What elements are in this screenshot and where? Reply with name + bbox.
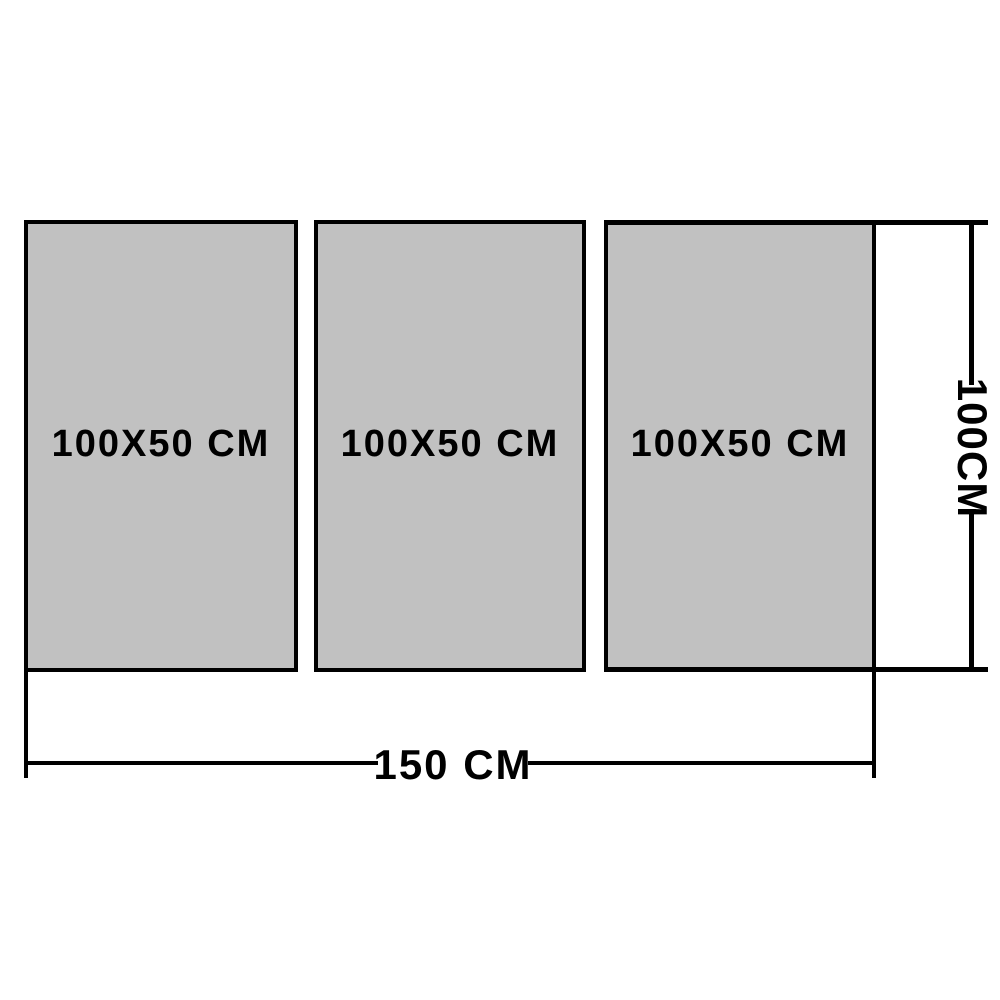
triptych-dimension-diagram: 100X50 CM 100X50 CM 100X50 CM 150 CM 100…: [0, 0, 1000, 1000]
panel-2-size-label: 100X50 CM: [341, 423, 560, 466]
panel-3-size-label: 100X50 CM: [631, 423, 850, 466]
height-dimension-line-lower-segment: [969, 512, 974, 672]
width-dimension-line-left-segment: [24, 761, 378, 765]
panel-1-size-label: 100X50 CM: [52, 423, 271, 466]
panel-1: 100X50 CM: [24, 220, 298, 672]
width-dimension-line-right-segment: [528, 761, 876, 765]
height-dimension-bottom-extension-line: [604, 667, 988, 672]
height-dimension-top-extension-line: [604, 220, 988, 225]
width-dimension-label: 150 CM: [373, 741, 532, 789]
panel-2: 100X50 CM: [314, 220, 586, 672]
panel-3: 100X50 CM: [604, 220, 876, 672]
height-dimension-label: 100CM: [948, 378, 996, 518]
height-dimension-line-upper-segment: [969, 220, 974, 385]
